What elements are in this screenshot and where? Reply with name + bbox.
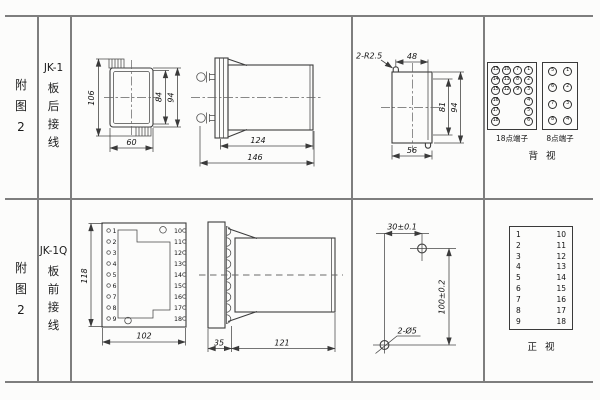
terminal-circle-1: 1 (524, 66, 533, 75)
terminal-number-14: 14 (174, 272, 182, 279)
terminal-circle-5: 5 (524, 107, 533, 116)
terminal-circle-11: 11 (502, 76, 511, 85)
terminal-number-7: 7 (113, 294, 117, 301)
dim-48: 48 (396, 52, 428, 140)
svg-text:2-Ø5: 2-Ø5 (398, 326, 417, 336)
terminal-circle-3: 3 (524, 86, 533, 95)
mounting-clip-bottom (136, 127, 151, 136)
panel-cutout-drawing: 48 2-R2.5 81 94 56 (352, 15, 484, 199)
mounting-clip-top (109, 59, 124, 68)
terminal-number-4: 4 (113, 261, 117, 268)
terminal-circle-14: 14 (491, 76, 500, 85)
terminal-block-8-label: 8点端子 (540, 133, 580, 144)
terminal-circle-3: 3 (563, 100, 572, 109)
terminal-circle-1: 1 (563, 67, 572, 76)
svg-text:60: 60 (126, 138, 136, 147)
table-number-12: 12 (556, 253, 566, 261)
terminal-number-1: 1 (113, 228, 117, 235)
dim-124: 124 (221, 131, 314, 150)
svg-text:56: 56 (407, 146, 417, 155)
svg-text:118: 118 (80, 268, 89, 283)
terminal-screw-bottom (197, 113, 215, 124)
table-number-6: 6 (516, 285, 521, 293)
front-view-inner-outline (118, 230, 170, 318)
table-number-13: 13 (556, 263, 566, 271)
svg-text:30±0.1: 30±0.1 (387, 223, 417, 232)
table-number-15: 15 (556, 285, 566, 293)
dim-121: 121 (232, 313, 336, 352)
terminal-circle-8: 8 (548, 116, 557, 125)
table-number-1: 1 (516, 231, 521, 239)
dim-100: 100±0.2 (438, 249, 450, 346)
terminal-circle-6: 6 (524, 117, 533, 126)
table-number-16: 16 (556, 296, 566, 304)
terminal-circle-8: 8 (513, 76, 522, 85)
jk1-outline-drawings: 106 84 94 60 (71, 15, 352, 199)
terminal-circle-16: 16 (491, 97, 500, 106)
front-view-label: 正视 (511, 339, 571, 353)
jk1-rear-view: 106 84 94 60 (87, 59, 181, 152)
dim-102: 102 (103, 328, 186, 346)
svg-text:81: 81 (438, 102, 447, 112)
terminal-block-18-label: 18点端子 (484, 133, 540, 144)
table-number-11: 11 (556, 242, 566, 250)
jk1q-outline-drawings: 123456789 101112131415161718 118 102 (71, 199, 352, 383)
svg-text:94: 94 (450, 102, 459, 112)
svg-text:84: 84 (155, 92, 164, 102)
terminal-number-5: 5 (113, 272, 117, 279)
figure-number-label: 附图2 (14, 75, 29, 138)
terminal-number-13: 13 (174, 261, 182, 268)
table-number-18: 18 (556, 318, 566, 326)
terminal-circle-4: 4 (563, 116, 572, 125)
terminal-number-3: 3 (113, 250, 117, 257)
wiring-type-label: 板前接线 (46, 262, 61, 334)
frontview-left-terminals: 123456789 (107, 228, 117, 323)
svg-text:106: 106 (87, 90, 96, 105)
terminal-circle-10: 10 (502, 66, 511, 75)
terminal-number-12: 12 (174, 250, 182, 257)
dim-118: 118 (80, 224, 103, 327)
terminal-number-10: 10 (174, 228, 182, 235)
table-number-2: 2 (516, 242, 521, 250)
cell-model-bottom: JK-1Q 板前接线 (37, 198, 70, 381)
table-number-10: 10 (556, 231, 566, 239)
terminal-number-9: 9 (113, 316, 117, 323)
table-number-5: 5 (516, 274, 521, 282)
figure-number-label: 附图2 (14, 258, 29, 321)
frontview-right-terminals: 101112131415161718 (174, 228, 186, 323)
terminal-circle-4: 4 (524, 97, 533, 106)
terminal-circle-13: 13 (491, 66, 500, 75)
terminal-circle-9: 9 (513, 86, 522, 95)
svg-text:100±0.2: 100±0.2 (438, 280, 447, 315)
table-number-7: 7 (516, 296, 521, 304)
figure-sheet: 附图2 JK-1 板后接线 附图2 JK-1Q 板前接线 (0, 0, 600, 400)
svg-text:94: 94 (167, 92, 176, 102)
cell-model-top: JK-1 板后接线 (37, 15, 70, 198)
svg-text:146: 146 (247, 153, 262, 162)
mounting-hole-top (160, 227, 167, 234)
front-view-terminal-table: 110211312413514615716817918 (509, 226, 573, 330)
terminal-circle-18: 18 (491, 117, 500, 126)
terminal-number-18: 18 (174, 316, 182, 323)
terminal-circle-6: 6 (548, 83, 557, 92)
table-number-3: 3 (516, 253, 521, 261)
svg-text:121: 121 (274, 339, 289, 348)
cell-figure-label-top: 附图2 (5, 15, 37, 198)
terminal-block-8: 51627384 (542, 62, 578, 130)
jk1q-side-view: 35 121 (199, 222, 343, 352)
cutout-slot-top (393, 67, 398, 72)
svg-text:35: 35 (214, 339, 224, 348)
terminal-number-8: 8 (113, 305, 117, 312)
table-number-4: 4 (516, 263, 521, 271)
svg-text:48: 48 (407, 52, 417, 61)
jk1-side-view: 124 146 (191, 58, 321, 167)
model-label: JK-1 (44, 62, 63, 74)
terminal-circle-12: 12 (502, 86, 511, 95)
table-number-8: 8 (516, 307, 521, 315)
rear-view-label: 背视 (512, 148, 572, 162)
radius-note: 2-R2.5 (356, 52, 393, 69)
table-number-17: 17 (556, 307, 566, 315)
svg-text:124: 124 (250, 136, 265, 145)
drilling-plan-drawing: 30±0.1 100±0.2 2-Ø5 (352, 199, 484, 383)
terminal-number-6: 6 (113, 283, 117, 290)
model-label: JK-1Q (40, 245, 68, 257)
jk1q-front-view: 123456789 101112131415161718 118 102 (80, 223, 186, 346)
terminal-number-17: 17 (174, 305, 182, 312)
terminal-number-11: 11 (174, 239, 182, 246)
terminal-number-16: 16 (174, 294, 182, 301)
terminal-circle-2: 2 (563, 83, 572, 92)
dim-35: 35 (208, 326, 232, 352)
terminal-block-18: 131071141182151293164175186 (487, 62, 537, 130)
terminal-circle-2: 2 (524, 76, 533, 85)
wiring-type-label: 板后接线 (46, 79, 61, 151)
terminal-circle-17: 17 (491, 107, 500, 116)
table-number-14: 14 (556, 274, 566, 282)
terminal-circle-7: 7 (548, 100, 557, 109)
terminal-circle-5: 5 (548, 67, 557, 76)
cutout-slot-bottom (425, 143, 430, 148)
svg-text:2-R2.5: 2-R2.5 (356, 52, 382, 61)
cell-figure-label-bottom: 附图2 (5, 198, 37, 381)
terminal-number-2: 2 (113, 239, 117, 246)
terminal-circle-15: 15 (491, 86, 500, 95)
terminal-screw-top (197, 72, 215, 83)
dim-30: 30±0.1 (376, 223, 429, 234)
table-number-9: 9 (516, 318, 521, 326)
svg-text:102: 102 (136, 332, 151, 341)
terminal-number-15: 15 (174, 283, 182, 290)
terminal-circle-7: 7 (513, 66, 522, 75)
